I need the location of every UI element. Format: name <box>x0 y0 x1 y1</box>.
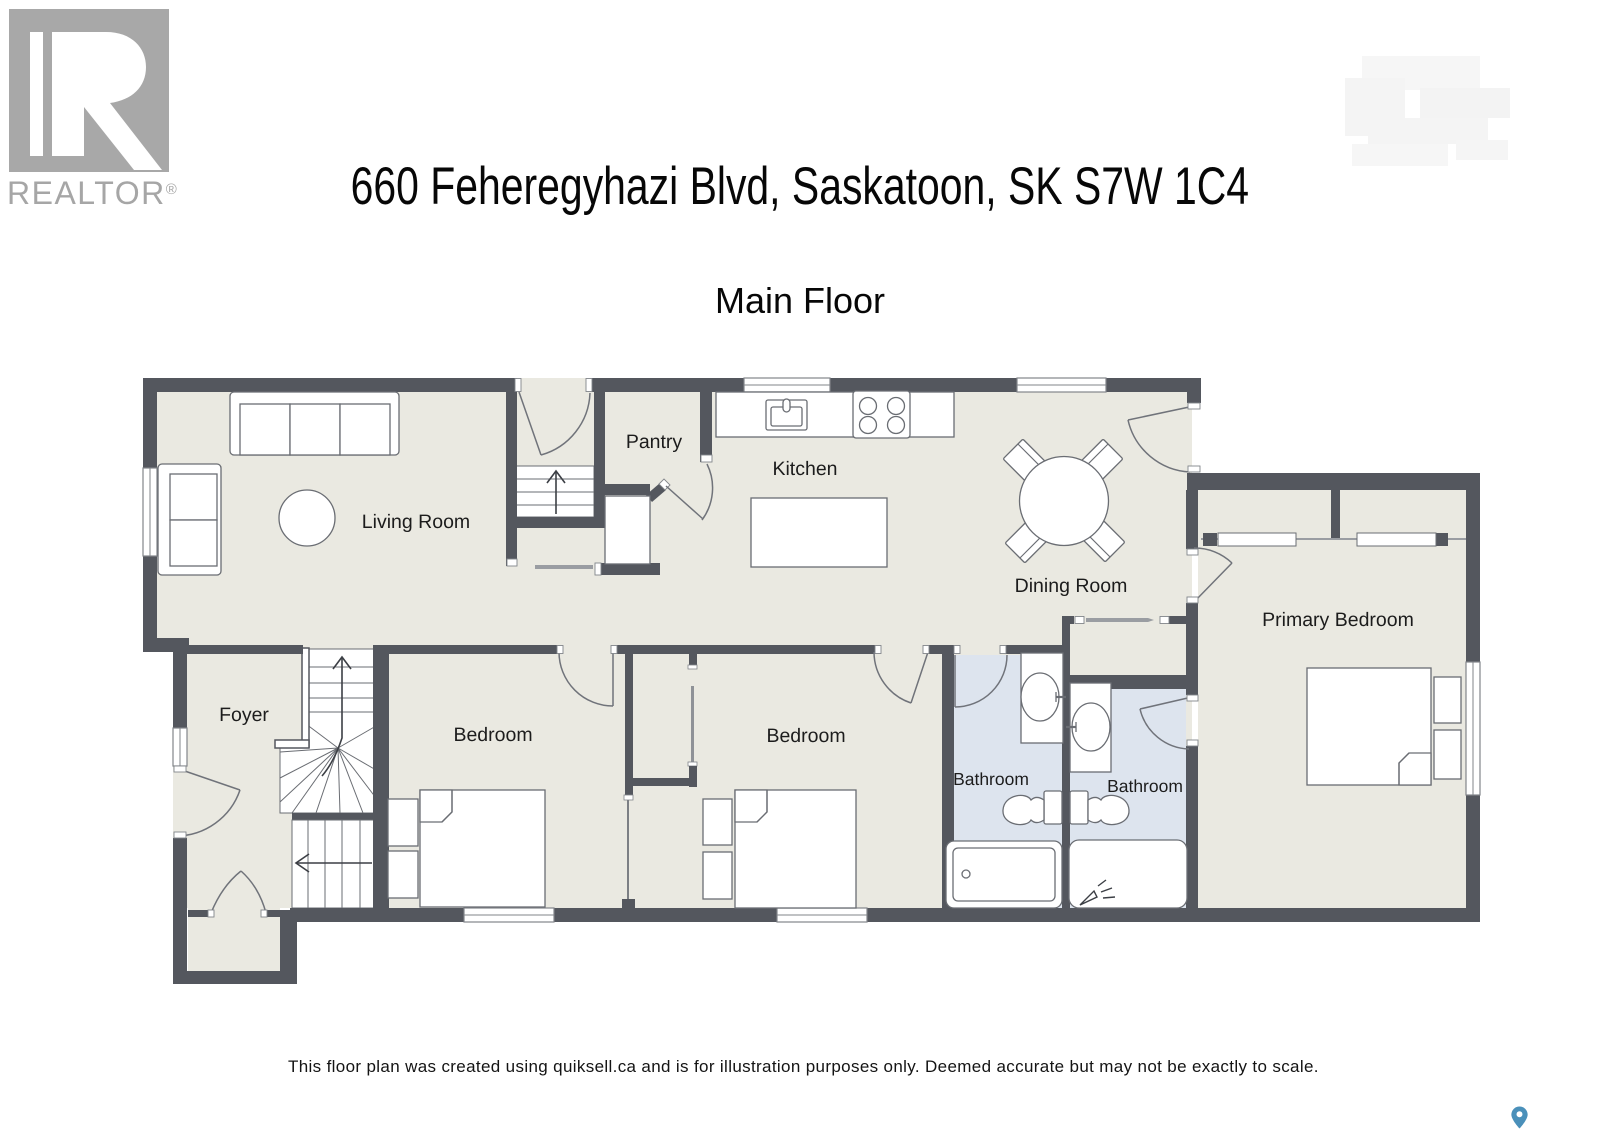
svg-text:Foyer: Foyer <box>219 704 269 726</box>
svg-text:Bedroom: Bedroom <box>453 724 532 746</box>
svg-text:Bedroom: Bedroom <box>766 725 845 747</box>
svg-text:Bathroom: Bathroom <box>953 769 1029 789</box>
svg-text:Kitchen: Kitchen <box>772 458 837 480</box>
svg-text:Pantry: Pantry <box>626 431 683 453</box>
svg-text:Primary Bedroom: Primary Bedroom <box>1262 609 1414 631</box>
svg-text:Bathroom: Bathroom <box>1107 776 1183 796</box>
svg-text:Living Room: Living Room <box>362 511 470 533</box>
svg-text:Dining Room: Dining Room <box>1015 575 1128 597</box>
